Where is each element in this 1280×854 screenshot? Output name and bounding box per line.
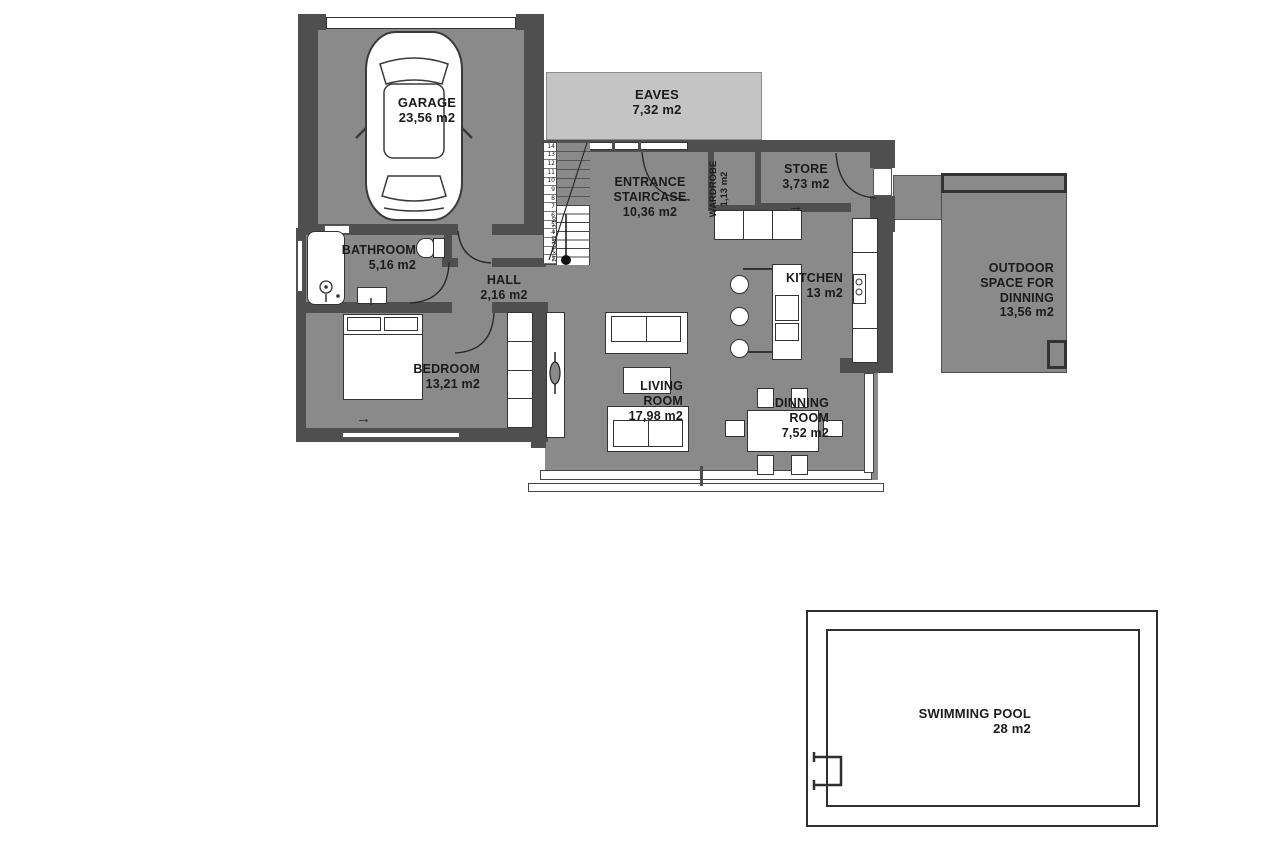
garage-left-wall [298,14,318,232]
stair-formula: 14 x 0,221 = 3,10 [552,194,558,262]
bathroom-sink [357,287,387,304]
glazing-mullion-1 [612,142,615,150]
stair-treads-lower [557,205,590,265]
stair-treads-upper [557,142,590,205]
living-glass-wall-outer [528,483,884,492]
dinning-glass-wall-right [864,373,874,473]
bathroom-label: BATHROOM 5,16 m2 [342,243,416,273]
bed-pillow [384,317,418,331]
bedroom-closet [507,312,533,428]
dinning-chair [725,420,745,437]
bedroom-left-wall [296,302,306,442]
bar-line-top [743,268,772,270]
living-glass-wall-inner [540,470,872,480]
glazing-mullion-2 [638,142,641,150]
bathroom-window [297,240,303,292]
garage-door [326,17,516,29]
bar-stool [730,339,749,358]
store-entry-arrow: → [788,198,803,215]
dinning-room-label: DINNING ROOM 7,52 m2 [775,396,829,440]
dinning-chair [757,455,774,475]
garage-hall-door-opening [458,224,492,235]
sofa-top-cushions [611,316,681,342]
oven [775,323,799,341]
toilet-tank [433,238,445,258]
store-exterior-door-gap [873,168,892,196]
bathtub [307,231,345,305]
bedroom-label: BEDROOM 13,21 m2 [413,362,480,392]
outdoor-planter [941,173,1067,193]
kitchen-right-wall [876,225,893,365]
dinning-chair [757,388,774,408]
garage-right-wall [524,14,544,232]
bedroom-window-arrow: → [356,410,371,427]
bedroom-window [342,432,460,438]
bed-blanket-line [343,334,423,335]
floor-plan: 1413121110987654321 14 x 0,221 = 3,10 [0,0,1280,854]
wardrobe-right-wall [755,150,761,210]
stair-step-number: 13 [544,152,556,161]
hall-label: HALL 2,16 m2 [480,273,527,303]
counter-divider-bottom [852,328,878,329]
bedroom-right-wall [531,302,546,448]
outdoor-small-box [1047,340,1067,369]
counter-divider-top [852,252,878,253]
stair-step-number: 10 [544,178,556,187]
bar-stool [730,307,749,326]
kitchen-sink [853,274,866,304]
stair-step-number: 12 [544,160,556,169]
stair-step-number: 11 [544,169,556,178]
garage-label: GARAGE 23,56 m2 [398,95,456,126]
dinning-chair [791,455,808,475]
tv-unit [546,312,565,438]
hall-door-opening [458,258,492,267]
glass-wall-mullion [700,466,703,486]
outdoor-arm-floor [893,175,941,220]
eaves-label: EAVES 7,32 m2 [632,87,681,118]
bar-stool [730,275,749,294]
stair-step-number: 14 [544,143,556,152]
entrance-staircase-label: ENTRANCE STAIRCASE 10,36 m2 [613,175,686,219]
store-label: STORE 3,73 m2 [782,162,829,192]
swimming-pool-label: SWIMMING POOL 28 m2 [919,706,1031,737]
bedroom-door-opening [452,302,492,313]
bed-pillow [347,317,381,331]
garage-top-left-post [298,14,326,30]
right-wall-top-post [870,140,895,168]
outdoor-label: OUTDOOR SPACE FOR DINNING 13,56 m2 [980,261,1054,320]
kitchen-label: KITCHEN 13 m2 [786,271,843,301]
sofa-bottom-cushions [613,420,683,447]
wardrobe-label: WARDROBE 1,13 m2 [709,159,749,219]
toilet-bowl [416,238,434,258]
garage-floor [317,26,524,228]
living-room-label: LIVING ROOM 17,98 m2 [629,379,683,423]
